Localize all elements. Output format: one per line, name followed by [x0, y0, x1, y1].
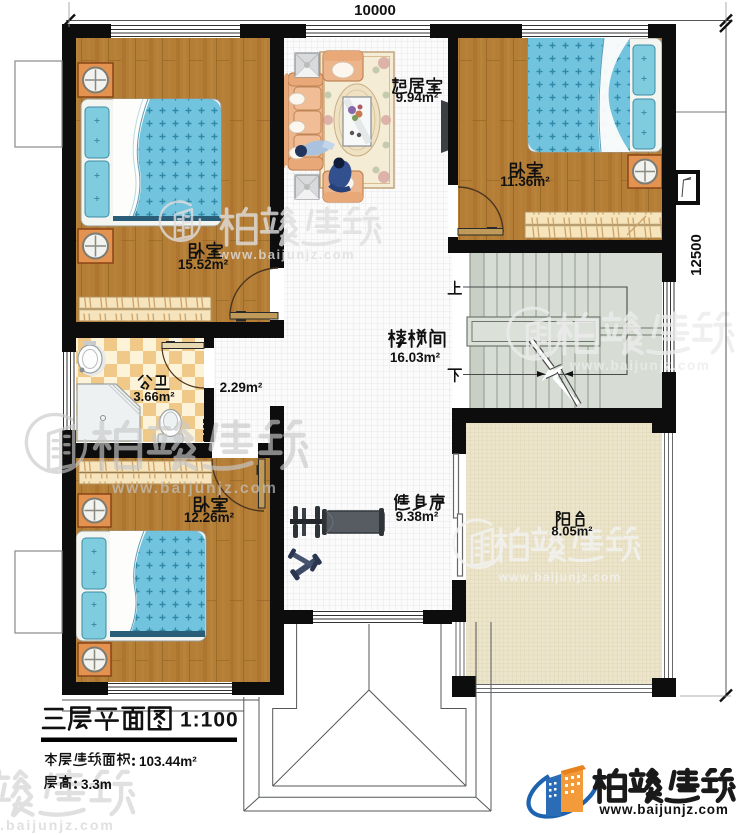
svg-text:16.03m²: 16.03m²: [390, 350, 441, 365]
svg-text:1:100: 1:100: [180, 709, 239, 732]
svg-text:2.29m²: 2.29m²: [220, 380, 263, 395]
svg-text:10000: 10000: [354, 2, 396, 19]
svg-text:www.baijunjz.com: www.baijunjz.com: [218, 247, 355, 262]
svg-text:www.baijunjz.com: www.baijunjz.com: [569, 358, 711, 373]
svg-text:11.36m²: 11.36m²: [500, 174, 550, 189]
svg-text:www.baijunjz.com: www.baijunjz.com: [598, 802, 728, 817]
svg-text:www.baijunjz.com: www.baijunjz.com: [498, 570, 622, 584]
svg-text:8.05m²: 8.05m²: [551, 524, 593, 539]
svg-text:12.26m²: 12.26m²: [184, 510, 235, 525]
svg-text:3.3m: 3.3m: [81, 777, 112, 792]
svg-text:3.66m²: 3.66m²: [133, 389, 175, 404]
svg-text:www.baijunjz.com: www.baijunjz.com: [0, 817, 115, 833]
svg-text:9.38m²: 9.38m²: [396, 509, 439, 524]
svg-text:9.94m²: 9.94m²: [396, 90, 439, 105]
svg-text:15.52m²: 15.52m²: [178, 257, 229, 272]
svg-text:12500: 12500: [688, 234, 705, 276]
svg-text:103.44m²: 103.44m²: [139, 754, 197, 769]
svg-text:www.baijunjz.com: www.baijunjz.com: [111, 480, 278, 497]
